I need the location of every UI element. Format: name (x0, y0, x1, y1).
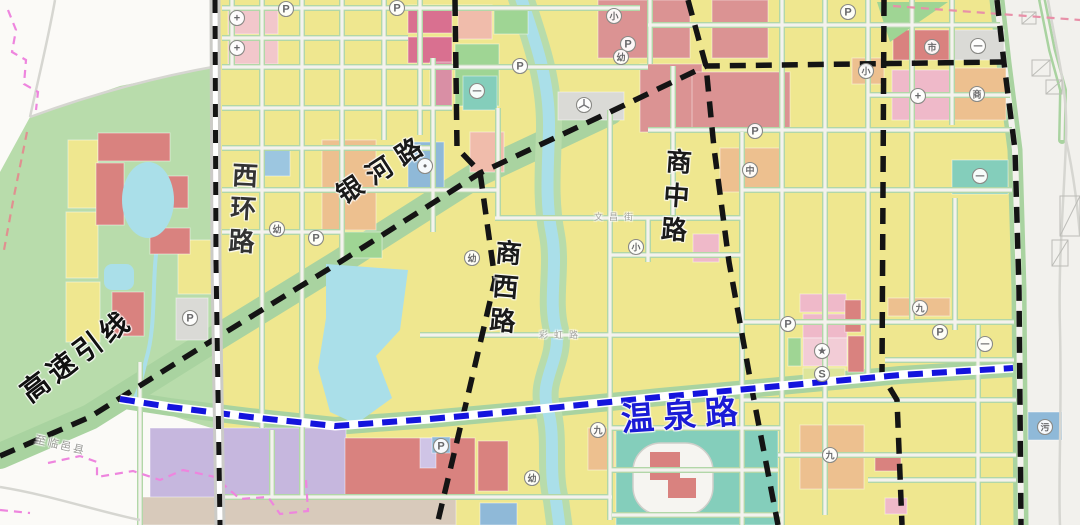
park-lake (122, 162, 174, 238)
land-block (893, 30, 949, 60)
svg-text:P: P (936, 326, 943, 338)
svg-text:P: P (844, 6, 851, 18)
land-block (140, 497, 456, 525)
svg-text:小: 小 (608, 10, 618, 21)
land-block (845, 300, 861, 332)
svg-text:小: 小 (630, 241, 640, 252)
city-planning-map[interactable]: ++PPP一小P幼九•P幼P幼小中市+一商小一九★SPPPPP污一幼九九 (0, 0, 1080, 525)
svg-text:P: P (393, 2, 400, 14)
svg-text:九: 九 (914, 302, 924, 313)
svg-text:商: 商 (972, 88, 981, 99)
svg-text:P: P (751, 125, 758, 137)
svg-text:九: 九 (824, 449, 834, 460)
svg-text:一: 一 (980, 339, 989, 349)
svg-text:P: P (186, 312, 193, 324)
svg-text:•: • (423, 160, 427, 172)
land-block (96, 163, 124, 225)
svg-text:P: P (312, 232, 319, 244)
svg-text:P: P (282, 3, 289, 15)
svg-text:幼: 幼 (527, 472, 536, 483)
land-block (480, 503, 517, 525)
svg-text:中: 中 (745, 164, 754, 175)
land-block (478, 441, 508, 491)
land-block (712, 0, 768, 58)
land-block (112, 292, 144, 336)
svg-text:九: 九 (341, 180, 351, 191)
svg-text:★: ★ (817, 345, 827, 357)
land-block (340, 232, 382, 258)
svg-text:+: + (234, 12, 240, 24)
map-viewport: ++PPP一小P幼九•P幼P幼小中市+一商小一九★SPPPPP污一幼九九 西环路… (0, 0, 1080, 525)
svg-text:P: P (624, 38, 631, 50)
svg-text:+: + (915, 90, 921, 102)
svg-text:一: 一 (973, 41, 982, 51)
svg-text:市: 市 (927, 41, 936, 52)
svg-text:幼: 幼 (467, 252, 476, 263)
land-block (494, 8, 528, 34)
svg-text:幼: 幼 (272, 223, 281, 234)
land-block (66, 212, 98, 278)
svg-text:一: 一 (472, 86, 481, 96)
land-block (788, 338, 801, 366)
park-pond (104, 264, 134, 290)
svg-text:幼: 幼 (616, 51, 625, 62)
svg-text:污: 污 (1040, 421, 1049, 432)
land-block (98, 133, 170, 161)
land-block (345, 438, 475, 496)
svg-text:S: S (818, 368, 825, 380)
svg-text:P: P (516, 60, 523, 72)
land-block (66, 282, 100, 342)
land-block (262, 148, 290, 176)
svg-text:+: + (234, 42, 240, 54)
svg-text:P: P (437, 440, 444, 452)
land-block (68, 140, 98, 208)
land-block (848, 336, 864, 372)
svg-text:P: P (784, 318, 791, 330)
svg-text:九: 九 (592, 424, 602, 435)
land-block (150, 428, 346, 498)
svg-text:小: 小 (860, 65, 870, 76)
svg-text:一: 一 (975, 171, 984, 181)
